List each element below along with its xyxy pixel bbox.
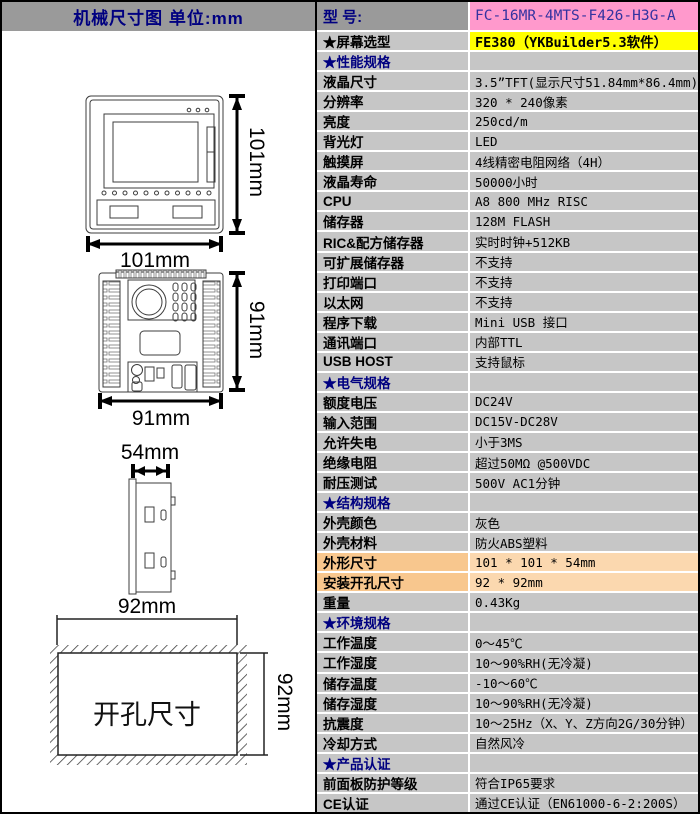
mechanical-panel: 101mm 101mm (0, 0, 315, 814)
spec-label: 液晶寿命 (317, 172, 468, 190)
spec-label: 储存温度 (317, 674, 468, 692)
front-width-label: 101mm (120, 249, 190, 272)
spec-value: 250cd/m (470, 112, 698, 130)
spec-label: 工作温度 (317, 633, 468, 651)
spec-value: 0～45℃ (470, 633, 698, 651)
rear-height-label: 91mm (245, 301, 268, 359)
spec-label: ★产品认证 (317, 754, 468, 772)
spec-row: 工作湿度10～90%RH(无冷凝) (317, 653, 698, 671)
spec-row: 触摸屏4线精密电阻网络（4H） (317, 152, 698, 170)
spec-sheet: 101mm 101mm (0, 0, 700, 814)
spec-value: 50000小时 (470, 172, 698, 190)
spec-value: 灰色 (470, 513, 698, 531)
spec-value: 10～90%RH(无冷凝) (470, 694, 698, 712)
spec-row: 工作温度0～45℃ (317, 633, 698, 651)
spec-value: Mini USB 接口 (470, 313, 698, 331)
rear-view-drawing (99, 270, 223, 392)
spec-row: CPUA8 800 MHz RISC (317, 192, 698, 210)
spec-label: 外壳颜色 (317, 513, 468, 531)
model-row: 型 号: FC-16MR-4MTS-F426-H3G-A (317, 2, 698, 30)
spec-label: 液晶尺寸 (317, 72, 468, 90)
spec-value (470, 52, 698, 70)
spec-row: 分辨率320 * 240像素 (317, 92, 698, 110)
model-value: FC-16MR-4MTS-F426-H3G-A (470, 2, 698, 30)
spec-row: ★性能规格 (317, 52, 698, 70)
spec-value: 不支持 (470, 273, 698, 291)
spec-row: 以太网不支持 (317, 293, 698, 311)
spec-row: 安装开孔尺寸92 * 92mm (317, 573, 698, 591)
spec-value: LED (470, 132, 698, 150)
cutout-height-label: 92mm (273, 673, 296, 731)
side-view-dimensions: 54mm (121, 441, 179, 478)
spec-value: 防火ABS塑料 (470, 533, 698, 551)
spec-row: ★结构规格 (317, 493, 698, 511)
spec-label: 储存器 (317, 212, 468, 230)
spec-label: 储存湿度 (317, 694, 468, 712)
cutout-caption: 开孔尺寸 (93, 700, 201, 731)
spec-label: 外形尺寸 (317, 553, 468, 571)
spec-value: 92 * 92mm (470, 573, 698, 591)
spec-row: 储存器128M FLASH (317, 212, 698, 230)
spec-label: ★结构规格 (317, 493, 468, 511)
spec-value: 10～25Hz（X、Y、Z方向2G/30分钟） (470, 714, 698, 732)
spec-table: 型 号: FC-16MR-4MTS-F426-H3G-A ★屏幕选型FE380（… (315, 0, 700, 814)
spec-label: 亮度 (317, 112, 468, 130)
spec-row: 液晶尺寸3.5”TFT(显示尺寸51.84mm*86.4mm) (317, 72, 698, 90)
spec-row: 外壳颜色灰色 (317, 513, 698, 531)
spec-row: 可扩展储存器不支持 (317, 253, 698, 271)
spec-row: 绝缘电阻超过50MΩ @500VDC (317, 453, 698, 471)
spec-row: 打印端口不支持 (317, 273, 698, 291)
spec-label: ★性能规格 (317, 52, 468, 70)
side-depth-label: 54mm (121, 441, 179, 464)
spec-row: 抗震度10～25Hz（X、Y、Z方向2G/30分钟） (317, 714, 698, 732)
model-label: 型 号: (317, 2, 468, 30)
spec-value: 不支持 (470, 293, 698, 311)
spec-row: CE认证通过CE认证（EN61000-6-2:200S） (317, 794, 698, 812)
spec-row: 背光灯LED (317, 132, 698, 150)
spec-label: CPU (317, 192, 468, 210)
spec-label: 外壳材料 (317, 533, 468, 551)
spec-row: ★环境规格 (317, 613, 698, 631)
spec-value: 128M FLASH (470, 212, 698, 230)
spec-value: 500V AC1分钟 (470, 473, 698, 491)
spec-label: ★环境规格 (317, 613, 468, 631)
spec-label: 绝缘电阻 (317, 453, 468, 471)
spec-row: 程序下载Mini USB 接口 (317, 313, 698, 331)
spec-value (470, 373, 698, 391)
spec-value: 0.43Kg (470, 593, 698, 611)
spec-label: 分辨率 (317, 92, 468, 110)
spec-row: ★产品认证 (317, 754, 698, 772)
spec-label: 可扩展储存器 (317, 253, 468, 271)
spec-label: 打印端口 (317, 273, 468, 291)
spec-row: 储存湿度10～90%RH(无冷凝) (317, 694, 698, 712)
spec-label: USB HOST (317, 353, 468, 371)
spec-value: 4线精密电阻网络（4H） (470, 152, 698, 170)
spec-label: 额度电压 (317, 393, 468, 411)
spec-value: 320 * 240像素 (470, 92, 698, 110)
spec-row: 外形尺寸101 * 101 * 54mm (317, 553, 698, 571)
spec-value: 通过CE认证（EN61000-6-2:200S） (470, 794, 698, 812)
spec-value: 10～90%RH(无冷凝) (470, 653, 698, 671)
spec-value: DC24V (470, 393, 698, 411)
spec-label: 以太网 (317, 293, 468, 311)
spec-label: 重量 (317, 593, 468, 611)
spec-label: CE认证 (317, 794, 468, 812)
spec-label: 工作湿度 (317, 653, 468, 671)
mechanical-drawings: 101mm 101mm (2, 2, 313, 812)
spec-row: ★电气规格 (317, 373, 698, 391)
cutout-width-label: 92mm (118, 595, 176, 618)
mechanical-panel-title: 机械尺寸图 单位:mm (2, 2, 315, 31)
spec-label: 冷却方式 (317, 734, 468, 752)
front-view-dimensions: 101mm 101mm (86, 94, 268, 272)
spec-label: 耐压测试 (317, 473, 468, 491)
spec-label: ★屏幕选型 (317, 32, 468, 50)
spec-row: 液晶寿命50000小时 (317, 172, 698, 190)
spec-row: ★屏幕选型FE380（YKBuilder5.3软件） (317, 32, 698, 50)
spec-row: USB HOST支持鼠标 (317, 353, 698, 371)
spec-label: 触摸屏 (317, 152, 468, 170)
spec-label: ★电气规格 (317, 373, 468, 391)
rear-width-label: 91mm (132, 407, 190, 430)
spec-value: DC15V-DC28V (470, 413, 698, 431)
spec-label: RIC&配方储存器 (317, 232, 468, 250)
spec-value (470, 493, 698, 511)
spec-row: 输入范围DC15V-DC28V (317, 413, 698, 431)
spec-value: 支持鼠标 (470, 353, 698, 371)
spec-value: 3.5”TFT(显示尺寸51.84mm*86.4mm) (470, 72, 698, 90)
spec-value: 超过50MΩ @500VDC (470, 453, 698, 471)
spec-row: 冷却方式自然风冷 (317, 734, 698, 752)
spec-value: 符合IP65要求 (470, 774, 698, 792)
spec-row: 额度电压DC24V (317, 393, 698, 411)
spec-label: 安装开孔尺寸 (317, 573, 468, 591)
spec-row: 外壳材料防火ABS塑料 (317, 533, 698, 551)
spec-label: 通讯端口 (317, 333, 468, 351)
spec-row: 通讯端口内部TTL (317, 333, 698, 351)
spec-value: 实时时钟+512KB (470, 232, 698, 250)
spec-row: 耐压测试500V AC1分钟 (317, 473, 698, 491)
spec-value: 内部TTL (470, 333, 698, 351)
front-view-drawing (86, 96, 223, 233)
spec-label: 程序下载 (317, 313, 468, 331)
spec-row: 储存温度-10～60℃ (317, 674, 698, 692)
side-view-drawing (129, 479, 175, 594)
spec-row: RIC&配方储存器实时时钟+512KB (317, 232, 698, 250)
spec-label: 允许失电 (317, 433, 468, 451)
spec-value: 101 * 101 * 54mm (470, 553, 698, 571)
spec-row: 前面板防护等级符合IP65要求 (317, 774, 698, 792)
cutout-drawing: 92mm 开孔尺寸 92mm (50, 595, 296, 765)
spec-row: 重量0.43Kg (317, 593, 698, 611)
spec-value (470, 613, 698, 631)
spec-label: 前面板防护等级 (317, 774, 468, 792)
spec-value: FE380（YKBuilder5.3软件） (470, 32, 698, 50)
spec-label: 抗震度 (317, 714, 468, 732)
spec-row: 亮度250cd/m (317, 112, 698, 130)
spec-value: -10～60℃ (470, 674, 698, 692)
front-height-label: 101mm (245, 127, 268, 197)
spec-value: A8 800 MHz RISC (470, 192, 698, 210)
spec-row: 允许失电小于3MS (317, 433, 698, 451)
spec-value: 不支持 (470, 253, 698, 271)
spec-value: 小于3MS (470, 433, 698, 451)
spec-value: 自然风冷 (470, 734, 698, 752)
rear-view-dimensions: 91mm 91mm (98, 271, 268, 430)
spec-label: 背光灯 (317, 132, 468, 150)
spec-value (470, 754, 698, 772)
spec-label: 输入范围 (317, 413, 468, 431)
